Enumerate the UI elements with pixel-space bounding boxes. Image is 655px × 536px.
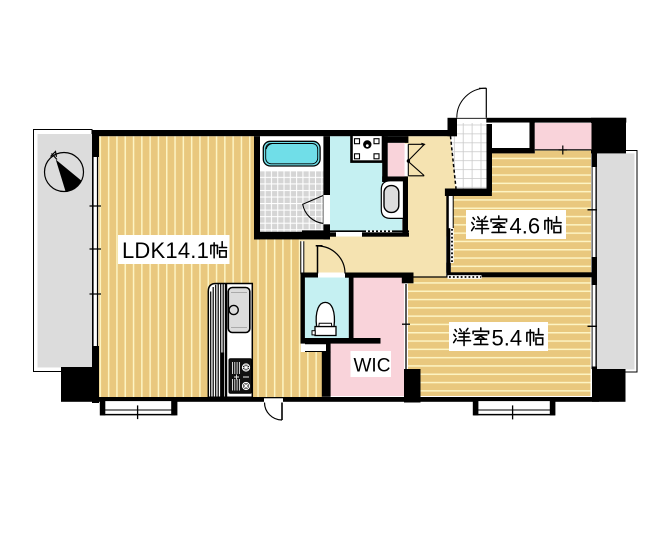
svg-text:LDK14.1: LDK14.1 <box>122 238 209 263</box>
svg-text:WIC: WIC <box>354 355 391 376</box>
svg-text:4.6: 4.6 <box>510 214 541 239</box>
svg-text:5.4: 5.4 <box>492 326 523 351</box>
